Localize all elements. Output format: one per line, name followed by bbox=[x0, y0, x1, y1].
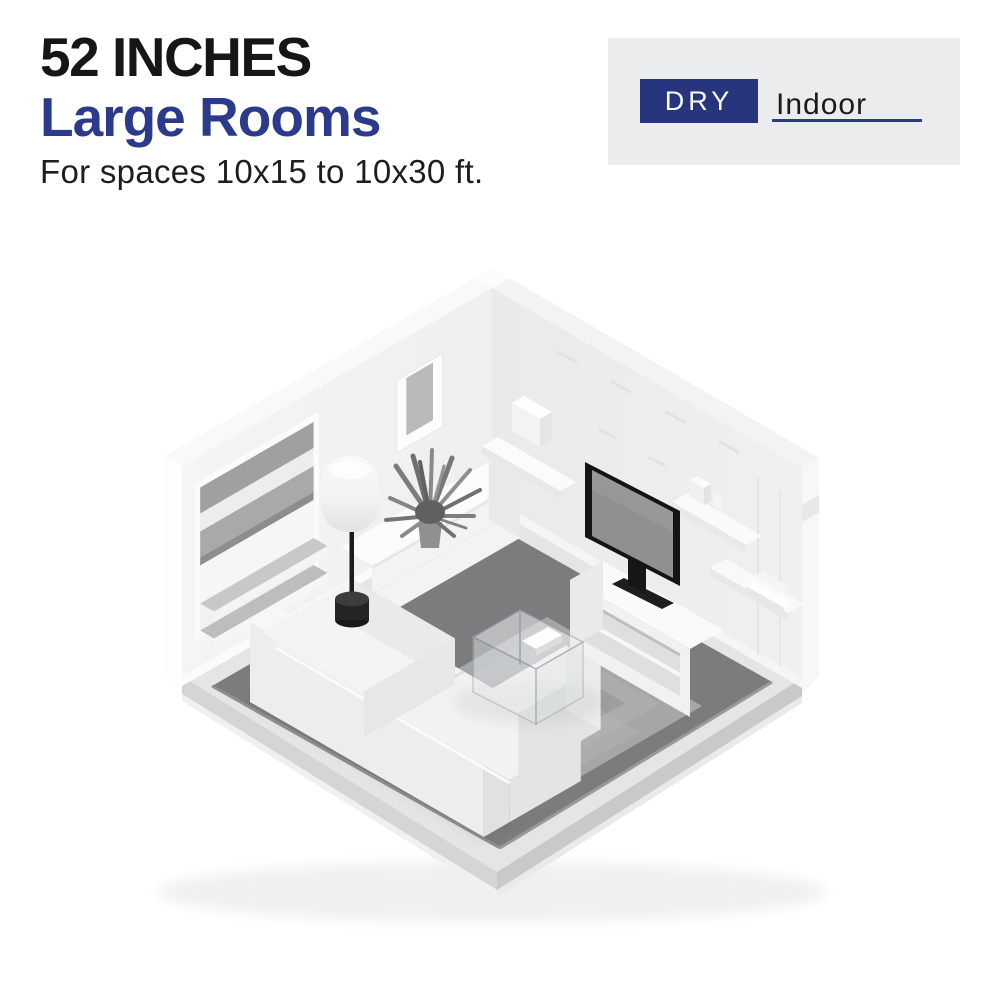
product-infographic: { "header": { "size_label": "52 INCHES",… bbox=[0, 0, 1000, 1000]
isometric-room-illustration bbox=[0, 0, 1000, 1000]
room-svg bbox=[0, 0, 1000, 1000]
